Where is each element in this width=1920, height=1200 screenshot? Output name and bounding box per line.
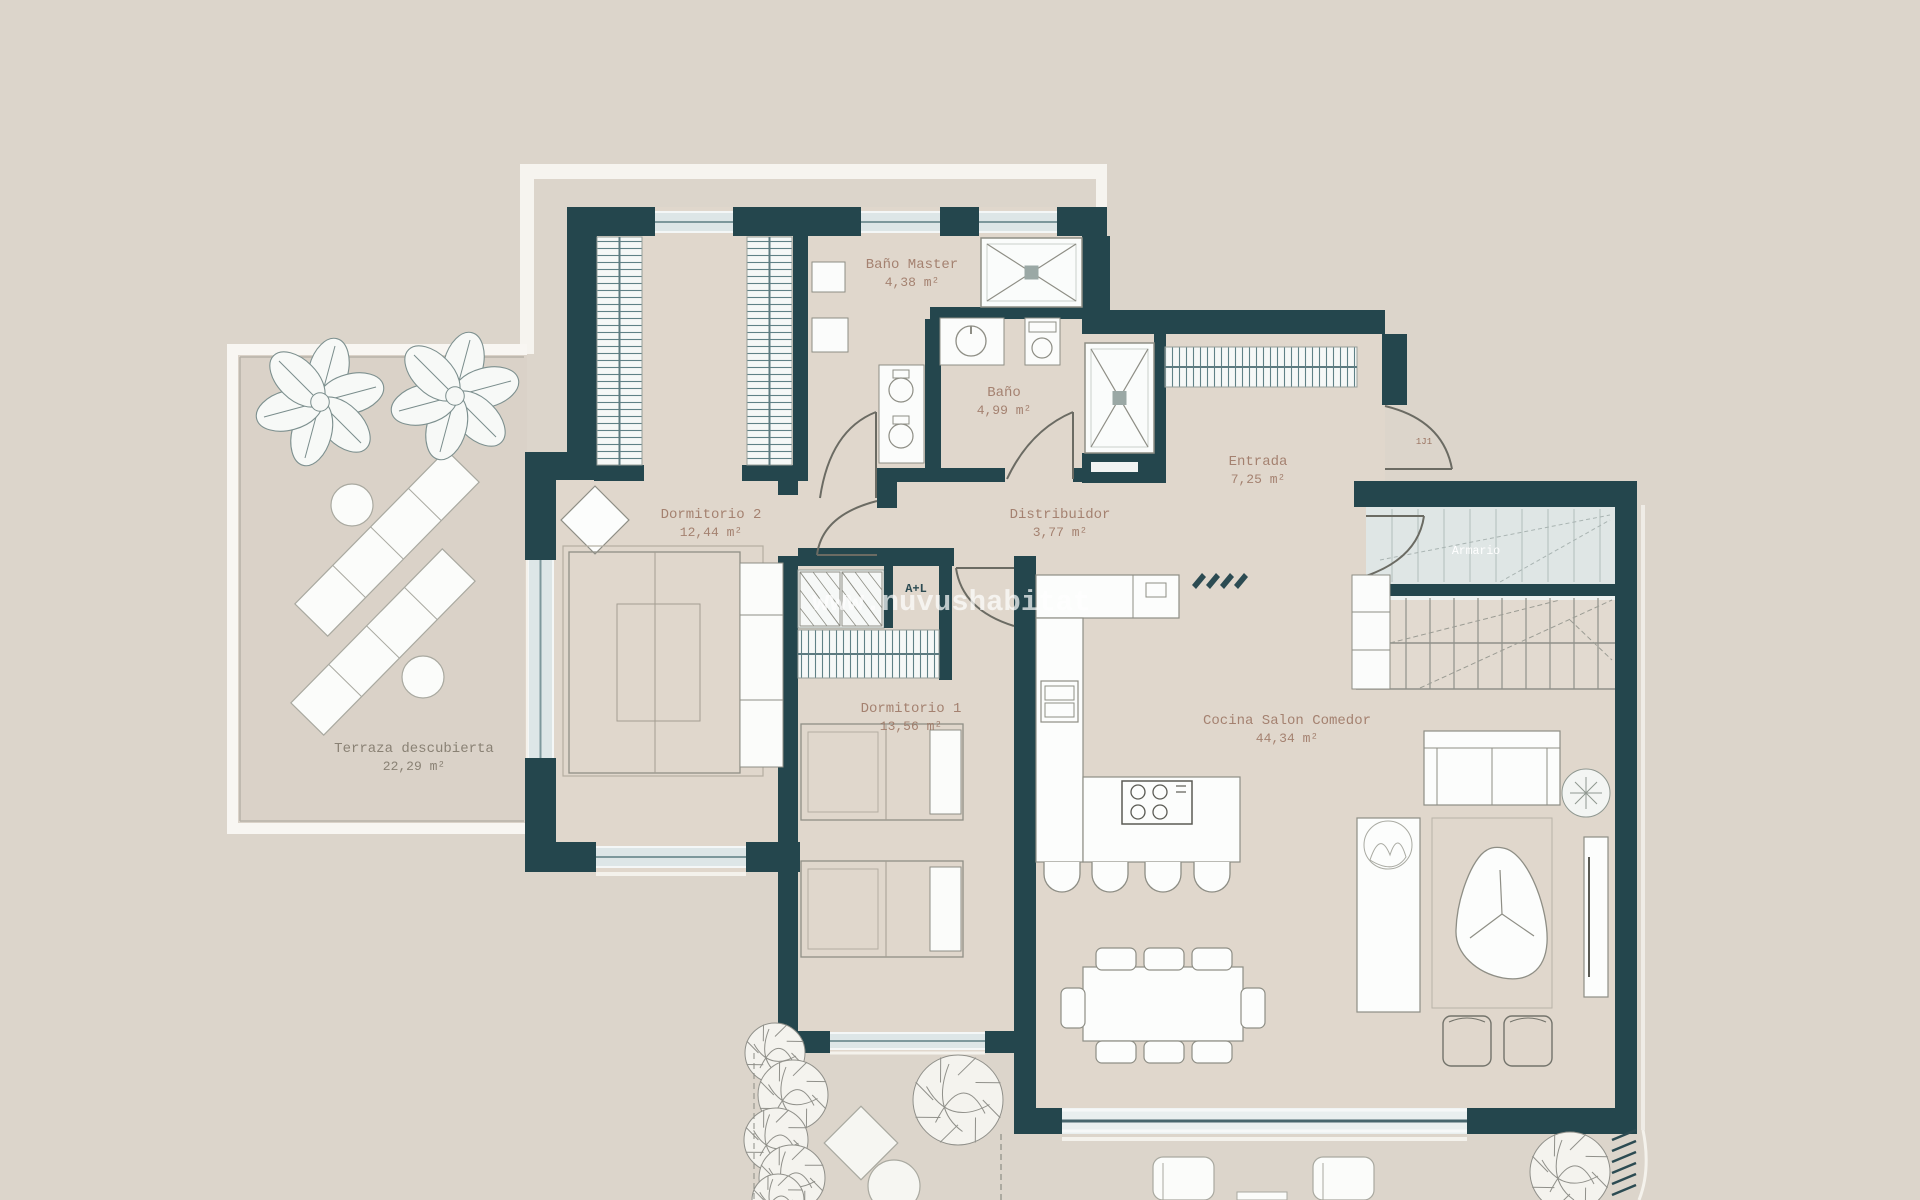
svg-text:4,99 m²: 4,99 m² — [977, 403, 1032, 418]
svg-text:Dormitorio 2: Dormitorio 2 — [661, 507, 762, 523]
svg-text:7,25 m²: 7,25 m² — [1231, 472, 1286, 487]
svg-text:Dormitorio 1: Dormitorio 1 — [861, 701, 962, 717]
svg-text:12,44 m²: 12,44 m² — [680, 525, 742, 540]
svg-text:1J1: 1J1 — [1416, 437, 1432, 447]
svg-text:44,34 m²: 44,34 m² — [1256, 731, 1318, 746]
svg-text:Entrada: Entrada — [1229, 454, 1288, 470]
svg-text:22,29 m²: 22,29 m² — [383, 759, 445, 774]
svg-text:Baño: Baño — [987, 385, 1021, 401]
svg-text:www.nuvushabitat: www.nuvushabitat — [812, 586, 1090, 619]
svg-text:3,77 m²: 3,77 m² — [1033, 525, 1088, 540]
svg-text:Armario: Armario — [1452, 545, 1500, 558]
svg-text:Distribuidor: Distribuidor — [1010, 507, 1111, 523]
svg-text:Baño Master: Baño Master — [866, 257, 958, 273]
svg-text:Terraza descubierta: Terraza descubierta — [334, 741, 494, 757]
svg-text:4,38 m²: 4,38 m² — [885, 275, 940, 290]
svg-text:Cocina Salon Comedor: Cocina Salon Comedor — [1203, 713, 1371, 729]
svg-text:13,56 m²: 13,56 m² — [880, 719, 942, 734]
